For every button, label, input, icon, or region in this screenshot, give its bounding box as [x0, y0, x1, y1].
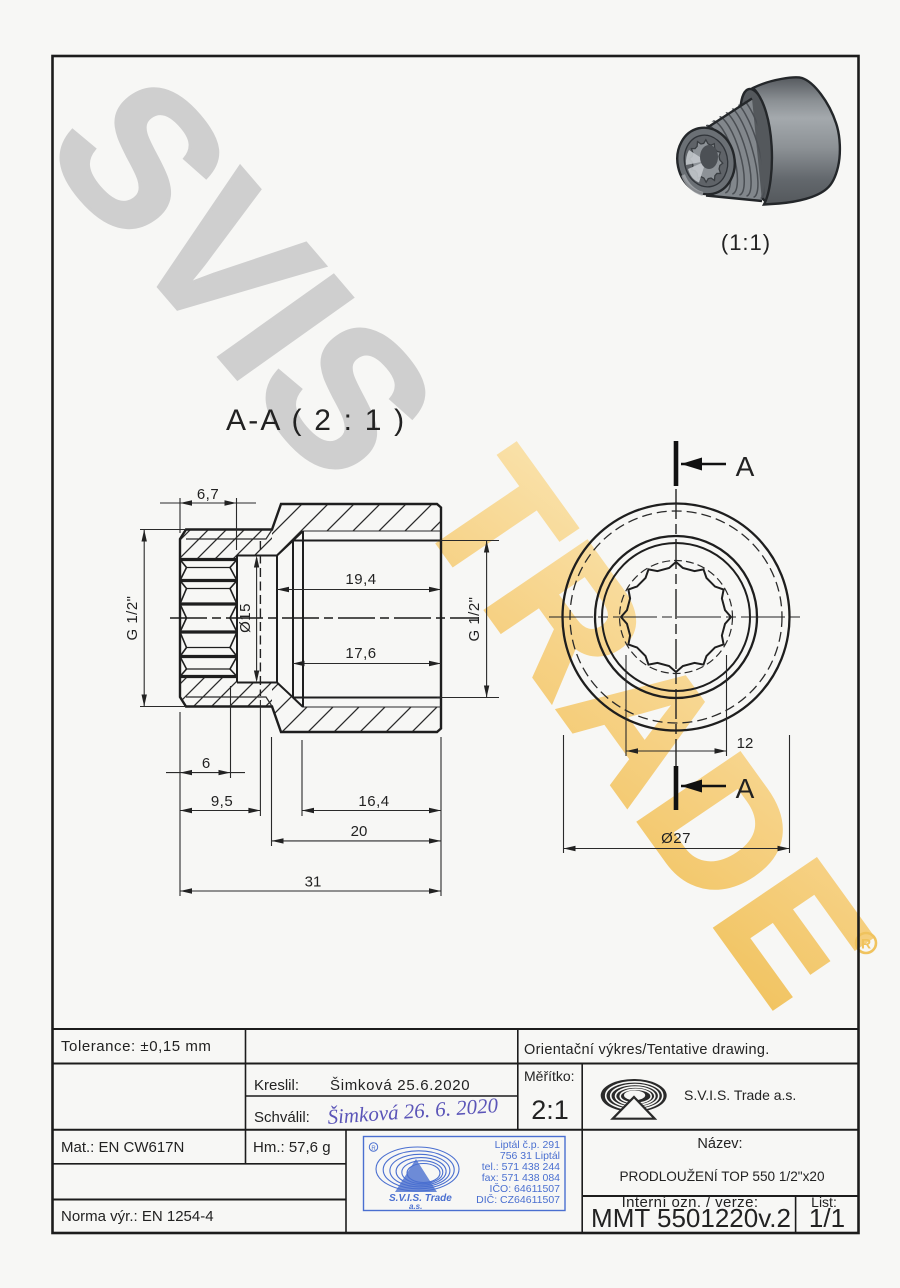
svg-text:Schválil:: Schválil:: [254, 1109, 310, 1126]
svg-text:DIČ: CZ64611507: DIČ: CZ64611507: [476, 1193, 560, 1206]
svg-text:17,6: 17,6: [345, 645, 376, 662]
svg-text:6: 6: [202, 755, 210, 772]
svg-text:PRODLOUŽENÍ TOP 550 1/2"x20: PRODLOUŽENÍ TOP 550 1/2"x20: [619, 1169, 824, 1184]
svg-text:MMT 5501220v.2: MMT 5501220v.2: [591, 1203, 791, 1233]
svg-text:A: A: [736, 451, 755, 482]
svg-text:a.s.: a.s.: [409, 1202, 422, 1211]
svg-text:Ø27: Ø27: [661, 830, 691, 847]
svg-text:6,7: 6,7: [197, 486, 219, 503]
svg-text:Měřítko:: Měřítko:: [524, 1068, 575, 1084]
svg-text:31: 31: [305, 874, 322, 891]
svg-text:12: 12: [737, 735, 754, 752]
svg-text:19,4: 19,4: [345, 571, 376, 588]
svg-text:2:1: 2:1: [531, 1095, 569, 1125]
svg-text:Šimková 25.6.2020: Šimková 25.6.2020: [330, 1077, 470, 1094]
svg-text:A: A: [736, 773, 755, 804]
svg-text:S.V.I.S. Trade a.s.: S.V.I.S. Trade a.s.: [684, 1087, 796, 1103]
svg-text:(1:1): (1:1): [721, 230, 771, 255]
svg-text:A-A ( 2 : 1 ): A-A ( 2 : 1 ): [226, 404, 406, 437]
svg-text:Mat.: EN CW617N: Mat.: EN CW617N: [61, 1139, 184, 1156]
svg-text:Norma výr.: EN 1254-4: Norma výr.: EN 1254-4: [61, 1208, 214, 1225]
svg-text:20: 20: [351, 823, 368, 840]
svg-text:Tolerance: ±0,15 mm: Tolerance: ±0,15 mm: [61, 1038, 211, 1055]
svg-text:R: R: [861, 936, 871, 952]
svg-text:9,5: 9,5: [211, 793, 233, 810]
svg-text:Kreslil:: Kreslil:: [254, 1077, 299, 1094]
svg-text:Orientační výkres/Tentative dr: Orientační výkres/Tentative drawing.: [524, 1042, 770, 1058]
svg-text:G 1/2": G 1/2": [466, 596, 483, 641]
svg-text:G 1/2": G 1/2": [124, 595, 141, 640]
svg-text:R: R: [371, 1146, 376, 1152]
svg-text:Ø15: Ø15: [237, 603, 254, 633]
svg-text:16,4: 16,4: [358, 793, 389, 810]
svg-text:1/1: 1/1: [809, 1203, 845, 1233]
svg-text:Hm.: 57,6 g: Hm.: 57,6 g: [253, 1139, 331, 1156]
svg-text:Název:: Název:: [697, 1136, 742, 1152]
